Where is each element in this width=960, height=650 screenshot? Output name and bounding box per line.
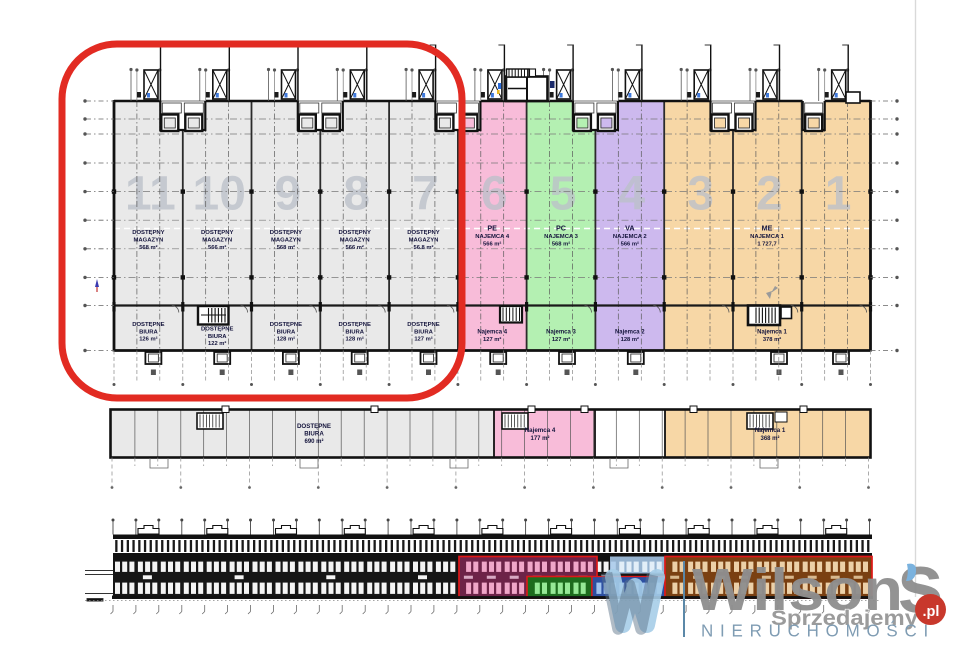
svg-text:Najemca 3: Najemca 3	[546, 330, 576, 336]
svg-text:BIURA: BIURA	[139, 329, 158, 335]
svg-text:.pl: .pl	[923, 604, 940, 620]
svg-text:DOSTĘPNY: DOSTĘPNY	[270, 230, 302, 236]
svg-text:1 727,7: 1 727,7	[757, 242, 776, 248]
svg-text:Najemca 4: Najemca 4	[525, 427, 556, 434]
svg-text:DOSTĘPNE: DOSTĘPNE	[132, 322, 164, 328]
svg-text:BIURA: BIURA	[208, 334, 227, 340]
svg-text:122 m²: 122 m²	[208, 340, 226, 347]
svg-text:DOSTĘPNY: DOSTĘPNY	[201, 230, 233, 236]
svg-text:NAJEMCA 2: NAJEMCA 2	[613, 234, 648, 240]
svg-text:DOSTĘPNY: DOSTĘPNY	[407, 230, 439, 236]
svg-text:128 m²: 128 m²	[621, 336, 639, 343]
svg-text:10: 10	[193, 168, 246, 221]
svg-text:NAJEMCA 3: NAJEMCA 3	[544, 234, 579, 240]
svg-text:MAGAZYN: MAGAZYN	[409, 238, 439, 244]
svg-text:128 m²: 128 m²	[277, 336, 295, 343]
svg-text:Najemca 1: Najemca 1	[757, 330, 787, 336]
svg-text:PC: PC	[556, 224, 566, 233]
svg-text:MAGAZYN: MAGAZYN	[271, 238, 301, 244]
svg-text:566 m²: 566 m²	[346, 244, 364, 251]
svg-text:NAJEMCA 4: NAJEMCA 4	[475, 234, 510, 240]
svg-text:BIURA: BIURA	[345, 329, 364, 335]
svg-text:BIURA: BIURA	[414, 329, 433, 335]
svg-text:127 m²: 127 m²	[414, 336, 432, 343]
svg-text:127 m²: 127 m²	[483, 336, 501, 343]
svg-text:128 m²: 128 m²	[346, 336, 364, 343]
svg-text:56.8 m²: 56.8 m²	[414, 244, 434, 251]
svg-text:126 m²: 126 m²	[139, 336, 157, 343]
svg-text:177 m²: 177 m²	[530, 435, 549, 442]
svg-text:Najemca 1: Najemca 1	[755, 427, 786, 434]
svg-text:568 m²: 568 m²	[552, 241, 570, 248]
svg-text:NIERUCHOMOŚCI: NIERUCHOMOŚCI	[701, 620, 935, 641]
svg-text:566 m²: 566 m²	[208, 244, 226, 251]
svg-text:368 m²: 368 m²	[760, 435, 779, 442]
svg-text:VA: VA	[625, 224, 634, 233]
svg-text:690 m²: 690 m²	[304, 438, 323, 445]
svg-text:DOSTĘPNE: DOSTĘPNE	[201, 327, 233, 333]
svg-text:566 m²: 566 m²	[621, 241, 639, 248]
svg-text:NAJEMCA 1: NAJEMCA 1	[750, 234, 785, 240]
svg-text:PE: PE	[487, 224, 497, 233]
svg-text:568 m²: 568 m²	[277, 244, 295, 251]
svg-text:BIURA: BIURA	[304, 431, 324, 438]
svg-text:DOSTĘPNY: DOSTĘPNY	[132, 230, 164, 236]
svg-text:ME: ME	[762, 224, 773, 233]
svg-text:378 m²: 378 m²	[763, 336, 781, 343]
svg-text:Najemca 2: Najemca 2	[615, 330, 645, 336]
svg-text:DOSTĘPNY: DOSTĘPNY	[338, 230, 370, 236]
svg-text:MAGAZYN: MAGAZYN	[202, 238, 232, 244]
svg-text:DOSTĘPNE: DOSTĘPNE	[407, 322, 439, 328]
svg-text:MAGAZYN: MAGAZYN	[340, 238, 370, 244]
svg-text:DOSTĘPNE: DOSTĘPNE	[338, 322, 370, 328]
svg-text:11: 11	[125, 168, 176, 221]
svg-text:DOSTĘPNE: DOSTĘPNE	[270, 322, 302, 328]
svg-text:MAGAZYN: MAGAZYN	[134, 238, 164, 244]
svg-text:DOSTĘPNE: DOSTĘPNE	[297, 423, 331, 430]
svg-text:Najemca 4: Najemca 4	[477, 330, 507, 336]
svg-text:BIURA: BIURA	[277, 329, 296, 335]
svg-text:566 m²: 566 m²	[483, 241, 501, 248]
svg-text:127 m²: 127 m²	[552, 336, 570, 343]
svg-text:568 m²: 568 m²	[139, 244, 157, 251]
